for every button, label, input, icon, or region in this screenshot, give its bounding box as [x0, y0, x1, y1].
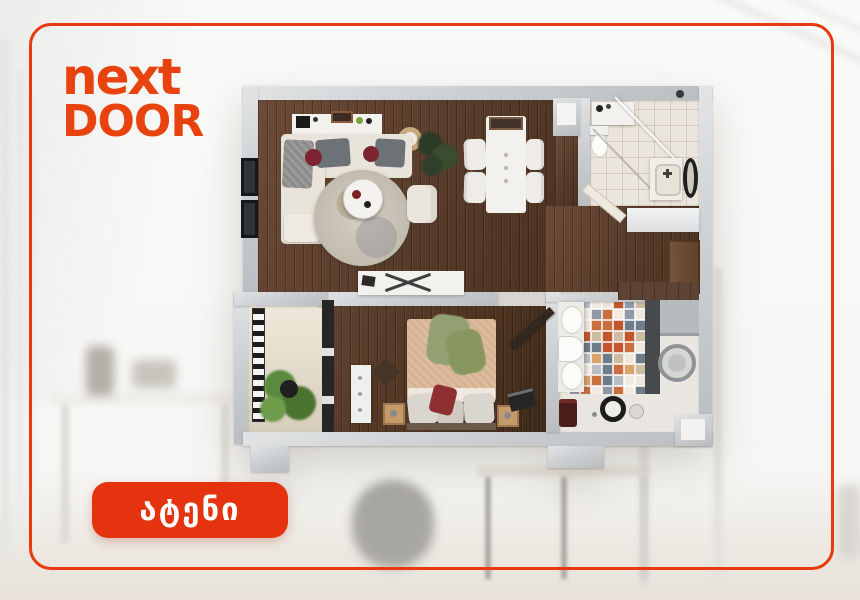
brand-logo-line2: DOOR — [62, 100, 203, 144]
tile-cell — [624, 353, 635, 364]
tile-cell — [624, 320, 635, 331]
dining-chair-3 — [526, 139, 544, 170]
bed-frame-foot — [407, 423, 496, 430]
tile-cell — [624, 375, 635, 386]
coffee-table-plate-black — [364, 201, 371, 208]
wall-foot-middle — [548, 446, 604, 468]
console-apple — [356, 117, 363, 124]
dining-chair — [463, 139, 486, 171]
floor-dot — [592, 412, 597, 417]
dresser-knob-3 — [358, 408, 362, 412]
dining-table-knob-2 — [504, 166, 508, 170]
tile-cell — [613, 353, 624, 364]
console-tray — [331, 111, 353, 123]
tile-cell — [591, 364, 602, 375]
bed-pillow-3 — [463, 393, 495, 425]
tile-cell — [613, 375, 624, 386]
balcony-plant-leaves-3 — [260, 396, 286, 422]
coffee-table — [343, 179, 383, 219]
bathroom-corridor-floor — [555, 136, 578, 206]
dining-table — [486, 116, 526, 213]
floor-small-plate — [629, 404, 644, 419]
dresser-knob-2 — [358, 392, 362, 396]
tile-cell — [613, 331, 624, 342]
window-left-2 — [241, 200, 258, 238]
kitchen-toilet — [558, 336, 584, 362]
wall-top — [243, 86, 712, 100]
tile-cell — [602, 342, 613, 353]
kitchen-basin-top — [561, 306, 583, 334]
hall-cabinet — [627, 208, 699, 232]
balcony-plant-pot — [280, 380, 298, 398]
console-speaker — [313, 117, 318, 122]
tile-cell — [613, 364, 624, 375]
tile-cell — [613, 309, 624, 320]
tile-cell — [624, 331, 635, 342]
tile-cell — [624, 364, 635, 375]
window-left-1 — [241, 158, 258, 196]
tv-screen — [296, 116, 310, 128]
tile-cell — [613, 342, 624, 353]
wall-right — [699, 86, 712, 444]
bathroom-washer-knob-2 — [606, 104, 611, 109]
console-bowl — [366, 118, 372, 124]
balcony-window-gap — [322, 348, 334, 356]
washing-machine-drum — [668, 354, 686, 372]
wall-left-lower — [234, 292, 248, 444]
tile-cell — [591, 353, 602, 364]
tile-cell — [624, 309, 635, 320]
brand-logo: next DOOR — [62, 52, 203, 144]
sofa-cushion-gray-2 — [374, 138, 405, 168]
nightstand-left-knob — [390, 410, 397, 417]
tile-cell — [591, 375, 602, 386]
dining-chair-4 — [526, 172, 544, 203]
bathroom-mirror — [683, 158, 698, 198]
brand-logo-line1: next — [62, 52, 203, 102]
bathroom-washer-knob — [596, 105, 603, 112]
shower-head — [676, 90, 684, 98]
tile-cell — [602, 331, 613, 342]
floor-ring-fixture — [600, 396, 626, 422]
kitchen-tall-cabinet — [645, 300, 660, 394]
tile-cell — [602, 375, 613, 386]
kitchen-fridge — [660, 300, 699, 336]
tile-cell — [624, 342, 635, 353]
tile-cell — [591, 309, 602, 320]
balcony-window-gap-2 — [322, 396, 334, 404]
location-badge[interactable]: ატენი — [92, 482, 288, 538]
sofa-cushion-red-2 — [363, 146, 379, 162]
tile-cell — [591, 320, 602, 331]
desk-phone — [361, 275, 375, 287]
dining-table-knob-3 — [504, 179, 508, 183]
wall-balcony-living — [234, 292, 328, 306]
tile-cell — [591, 342, 602, 353]
tile-cell — [602, 320, 613, 331]
bathroom-faucet-2 — [666, 169, 669, 178]
wall-bottom — [243, 432, 712, 446]
wall-notch-inset — [681, 419, 705, 440]
stage: next DOOR ატენი — [0, 0, 860, 600]
location-badge-label: ატენი — [139, 492, 240, 528]
duct-shaft-inset — [557, 103, 576, 125]
dining-table-knob — [504, 153, 508, 157]
dining-chair-2 — [463, 172, 486, 204]
wall-foot-left — [251, 446, 289, 472]
tile-cell — [602, 364, 613, 375]
plant-large-leaves-3 — [422, 156, 442, 176]
dining-table-tray — [489, 117, 523, 130]
dresser-knob — [358, 376, 362, 380]
balcony-window-frame — [322, 300, 334, 432]
tile-cell — [591, 331, 602, 342]
tile-cell — [602, 309, 613, 320]
armchair — [407, 185, 437, 223]
kitchen-basin-bottom — [561, 362, 583, 390]
coffee-machine — [559, 399, 577, 427]
coffee-table-plate-red — [352, 190, 361, 199]
kitchen-upper-cabinets — [618, 282, 699, 300]
sofa-cushion-red — [305, 149, 322, 166]
tile-cell — [602, 353, 613, 364]
nightstand-right-knob — [504, 412, 511, 419]
tile-cell — [613, 320, 624, 331]
